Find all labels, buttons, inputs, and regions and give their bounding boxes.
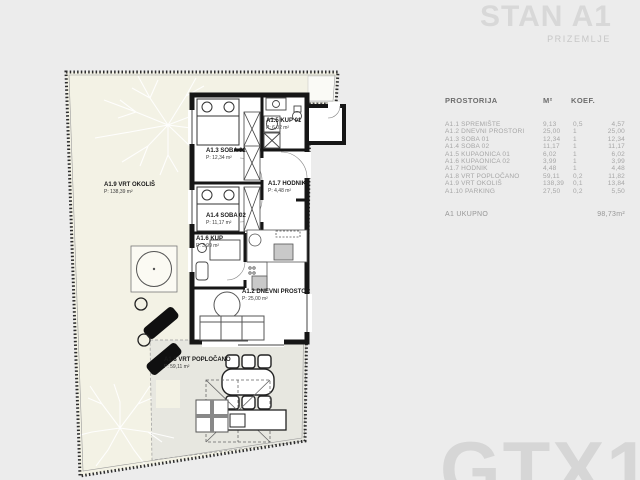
area-table: PROSTORIJA M² KOEF. A1.1 SPREMIŠTE 9,13 …	[445, 96, 625, 218]
room-name: A1.2 DNEVNI PROSTORI	[445, 128, 543, 135]
total-label: A1 UKUPNO	[445, 211, 488, 218]
room-weighted-area: 25,00	[591, 128, 625, 135]
plan-label-dnevni: A1.2 DNEVNI PROSTOR P: 25,00 m²	[242, 289, 310, 302]
room-label: A1.9 VRT OKOLIŠ	[104, 182, 155, 189]
room-label: A1.7 HODNIK	[268, 181, 306, 188]
garden-table	[196, 400, 228, 432]
room-label: A1.6 KUP	[196, 236, 223, 243]
room-weighted-area: 11,82	[591, 173, 625, 180]
room-area: 27,50	[543, 188, 571, 195]
wardrobe-soba02	[244, 187, 260, 231]
room-koef: 0,2	[571, 188, 591, 195]
plan-label-kup01: A1.5 KUP 01 P: 6,02 m²	[266, 118, 301, 131]
room-weighted-area: 3,99	[591, 158, 625, 165]
room-area: 3,99	[543, 158, 571, 165]
col-room: PROSTORIJA	[445, 96, 543, 105]
plan-label-kup02: A1.6 KUP P: 3,99 m²	[196, 236, 223, 249]
bed-soba01	[197, 99, 239, 145]
room-label: A1.4 SOBA 02	[206, 213, 246, 220]
col-koef: KOEF.	[571, 96, 601, 105]
room-area-label: P: 59,11 m²	[164, 364, 231, 370]
room-area: 138,39	[543, 180, 571, 187]
room-area-label: P: 6,02 m²	[266, 125, 301, 131]
watermark-text: GTX1	[440, 430, 640, 480]
table-row: A1.3 SOBA 01 12,34 1 12,34	[445, 136, 625, 143]
room-area-label: P: 12,34 m²	[206, 155, 246, 161]
room-koef: 1	[571, 143, 591, 150]
plan-label-soba01: A1.3 SOBA 01 P: 12,34 m²	[206, 148, 246, 161]
room-area: 59,11	[543, 173, 571, 180]
room-area-label: P: 3,99 m²	[196, 243, 223, 249]
plan-label-soba02: A1.4 SOBA 02 P: 11,17 m²	[206, 213, 246, 226]
room-name: A1.9 VRT OKOLIŠ	[445, 180, 543, 187]
room-weighted-area: 4,57	[591, 121, 625, 128]
room-name: A1.10 PARKING	[445, 188, 543, 195]
table-row: A1.1 SPREMIŠTE 9,13 0,5 4,57	[445, 121, 625, 128]
table-header: PROSTORIJA M² KOEF.	[445, 96, 625, 105]
table-row: A1.5 KUPAONICA 01 6,02 1 6,02	[445, 151, 625, 158]
bbq-counter	[224, 410, 286, 430]
room-name: A1.1 SPREMIŠTE	[445, 121, 543, 128]
room-area-label: P: 4,48 m²	[268, 188, 306, 194]
table-row: A1.10 PARKING 27,50 0,2 5,50	[445, 188, 625, 195]
page-subtitle: PRIZEMLJE	[547, 34, 611, 44]
room-weighted-area: 13,84	[591, 180, 625, 187]
wardrobe-soba01	[244, 112, 260, 180]
room-area: 12,34	[543, 136, 571, 143]
room-koef: 1	[571, 128, 591, 135]
room-weighted-area: 11,17	[591, 143, 625, 150]
tree-planter	[131, 246, 177, 292]
col-area: M²	[543, 96, 571, 105]
room-koef: 1	[571, 151, 591, 158]
plan-label-vrt-poplocano: A1.8 VRT POPLOČANO P: 59,11 m²	[164, 357, 231, 370]
floor-plan-sheet: A1.9 VRT OKOLIŠ P: 138,39 m² A1.3 SOBA 0…	[0, 0, 640, 480]
table-row: A1.6 KUPAONICA 02 3,99 1 3,99	[445, 158, 625, 165]
table-row: A1.2 DNEVNI PROSTORI 25,00 1 25,00	[445, 128, 625, 135]
room-area: 6,02	[543, 151, 571, 158]
room-area: 4,48	[543, 165, 571, 172]
room-area: 11,17	[543, 143, 571, 150]
room-label: A1.8 VRT POPLOČANO	[164, 357, 231, 364]
room-name: A1.3 SOBA 01	[445, 136, 543, 143]
plan-label-vrt-okolis: A1.9 VRT OKOLIŠ P: 138,39 m²	[104, 182, 155, 195]
room-weighted-area: 12,34	[591, 136, 625, 143]
room-name: A1.5 KUPAONICA 01	[445, 151, 543, 158]
room-area-label: P: 138,39 m²	[104, 189, 155, 195]
total-value: 98,73m²	[597, 211, 625, 218]
room-area: 25,00	[543, 128, 571, 135]
room-name: A1.7 HODNIK	[445, 165, 543, 172]
room-weighted-area: 6,02	[591, 151, 625, 158]
room-area-label: P: 25,00 m²	[242, 296, 310, 302]
room-weighted-area: 4,48	[591, 165, 625, 172]
table-row: A1.7 HODNIK 4,48 1 4,48	[445, 165, 625, 172]
plan-label-hodnik: A1.7 HODNIK P: 4,48 m²	[268, 181, 306, 194]
floor-plan-drawing	[0, 0, 640, 480]
room-koef: 1	[571, 136, 591, 143]
room-label: A1.5 KUP 01	[266, 118, 301, 125]
room-weighted-area: 5,50	[591, 188, 625, 195]
room-name: A1.4 SOBA 02	[445, 143, 543, 150]
room-koef: 1	[571, 165, 591, 172]
room-koef: 0,1	[571, 180, 591, 187]
room-label: A1.2 DNEVNI PROSTOR	[242, 289, 310, 296]
room-koef: 1	[571, 158, 591, 165]
total-row: A1 UKUPNO 98,73m²	[445, 211, 625, 218]
entry-path	[308, 76, 336, 102]
table-row: A1.9 VRT OKOLIŠ 138,39 0,1 13,84	[445, 180, 625, 187]
room-area: 9,13	[543, 121, 571, 128]
room-koef: 0,2	[571, 173, 591, 180]
room-label: A1.3 SOBA 01	[206, 148, 246, 155]
room-koef: 0,5	[571, 121, 591, 128]
page-title: STAN A1	[480, 0, 612, 34]
room-name: A1.6 KUPAONICA 02	[445, 158, 543, 165]
table-row: A1.4 SOBA 02 11,17 1 11,17	[445, 143, 625, 150]
room-area-label: P: 11,17 m²	[206, 220, 246, 226]
